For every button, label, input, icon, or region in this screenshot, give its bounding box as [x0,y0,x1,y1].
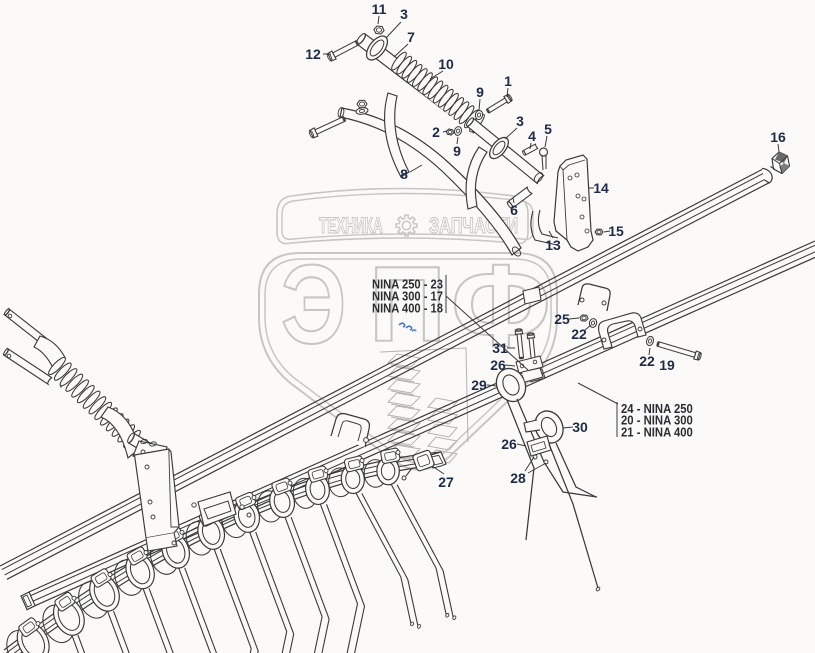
svg-text:19: 19 [659,357,675,373]
svg-text:10: 10 [438,56,454,72]
svg-text:ТЕХНИКА: ТЕХНИКА [319,213,383,238]
svg-text:15: 15 [608,223,624,239]
svg-text:25: 25 [554,311,570,327]
svg-text:1: 1 [504,73,512,89]
svg-text:5: 5 [544,121,552,137]
svg-text:26: 26 [501,436,517,452]
svg-text:6: 6 [510,202,518,218]
svg-text:31: 31 [492,340,508,356]
svg-text:13: 13 [545,237,561,253]
svg-text:22: 22 [571,326,587,342]
svg-text:8: 8 [400,166,408,182]
svg-text:Э: Э [281,241,346,367]
svg-text:28: 28 [510,470,526,486]
svg-text:16: 16 [770,129,786,145]
svg-text:7: 7 [407,29,415,45]
svg-text:9: 9 [453,143,461,159]
svg-text:NINA 400 - 18: NINA 400 - 18 [372,301,443,316]
svg-text:9: 9 [476,84,484,100]
svg-text:4: 4 [528,128,536,144]
svg-text:26: 26 [490,357,506,373]
svg-text:11: 11 [372,1,387,17]
svg-text:3: 3 [400,6,408,22]
svg-text:3: 3 [516,113,524,129]
svg-text:2: 2 [432,124,440,140]
svg-text:30: 30 [572,419,588,435]
svg-text:22: 22 [639,353,655,369]
svg-text:21 - NINA 400: 21 - NINA 400 [621,425,693,440]
svg-text:29: 29 [471,377,487,393]
svg-text:14: 14 [593,180,609,196]
svg-text:12: 12 [305,46,321,62]
svg-text:27: 27 [438,474,454,490]
